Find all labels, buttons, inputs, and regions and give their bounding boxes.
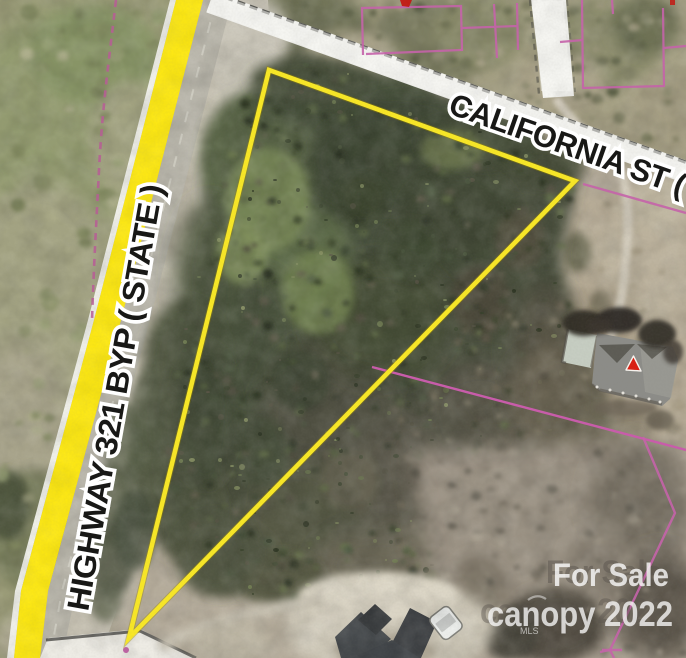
svg-text:For Sale: For Sale (553, 557, 669, 593)
svg-text:MLS: MLS (520, 626, 539, 636)
svg-text:canopy 2022: canopy 2022 (487, 595, 673, 634)
